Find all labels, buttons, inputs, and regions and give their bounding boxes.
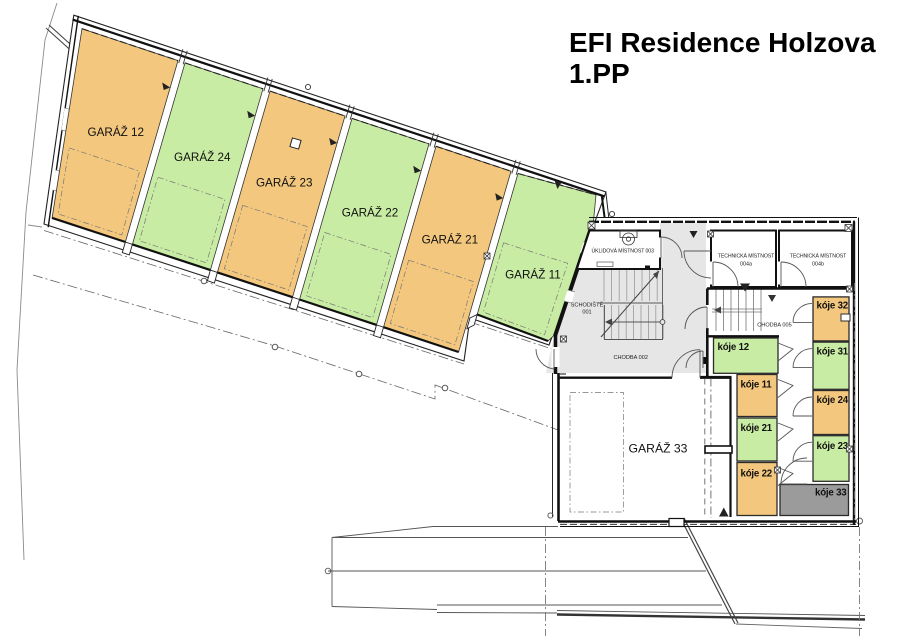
svg-text:GARÁŽ 11: GARÁŽ 11 xyxy=(505,268,561,281)
svg-text:kóje 33: kóje 33 xyxy=(815,487,847,498)
svg-text:SCHODIŠTĚ: SCHODIŠTĚ xyxy=(571,301,604,309)
svg-text:ÚKLIDOVÁ MÍSTNOST 003: ÚKLIDOVÁ MÍSTNOST 003 xyxy=(592,248,655,255)
svg-text:kóje 24: kóje 24 xyxy=(817,395,849,406)
svg-text:GARÁŽ 21: GARÁŽ 21 xyxy=(422,234,479,247)
svg-text:GARÁŽ 22: GARÁŽ 22 xyxy=(342,207,399,220)
svg-text:kóje 31: kóje 31 xyxy=(817,347,849,358)
svg-text:kóje 12: kóje 12 xyxy=(718,342,749,353)
svg-text:004a: 004a xyxy=(740,262,752,268)
svg-text:kóje 22: kóje 22 xyxy=(741,469,772,480)
svg-text:GARÁŽ 33: GARÁŽ 33 xyxy=(629,441,688,456)
svg-text:GARÁŽ 12: GARÁŽ 12 xyxy=(88,126,145,139)
svg-text:EFI Residence Holzova: EFI Residence Holzova xyxy=(569,27,876,58)
svg-text:kóje 21: kóje 21 xyxy=(741,423,773,434)
svg-text:kóje 32: kóje 32 xyxy=(817,300,848,311)
svg-text:GARÁŽ 23: GARÁŽ 23 xyxy=(256,176,313,189)
svg-text:001: 001 xyxy=(582,310,591,316)
svg-text:1.PP: 1.PP xyxy=(569,58,630,89)
svg-text:TECHNICKÁ MÍSTNOST: TECHNICKÁ MÍSTNOST xyxy=(718,253,775,260)
svg-text:kóje 11: kóje 11 xyxy=(741,380,773,391)
svg-text:CHODBA 005: CHODBA 005 xyxy=(757,323,792,329)
svg-text:GARÁŽ 24: GARÁŽ 24 xyxy=(174,151,231,164)
svg-text:TECHNICKÁ MÍSTNOST: TECHNICKÁ MÍSTNOST xyxy=(790,253,847,260)
svg-text:004b: 004b xyxy=(812,262,824,268)
svg-text:CHODBA 002: CHODBA 002 xyxy=(613,355,648,361)
svg-text:kóje 23: kóje 23 xyxy=(817,441,849,452)
